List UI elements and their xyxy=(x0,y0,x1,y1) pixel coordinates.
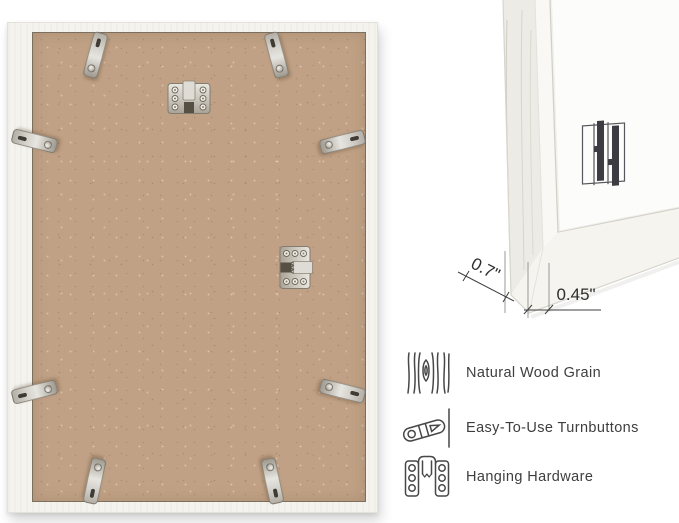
feature-item-turnbuttons: Easy-To-Use Turnbuttons xyxy=(400,406,639,450)
wood-grain-icon xyxy=(400,350,454,396)
feature-label: Natural Wood Grain xyxy=(466,365,601,381)
frame-mat xyxy=(550,0,679,232)
dimension-label-face-width: 0.45" xyxy=(556,285,595,304)
frame-corner-photo: 0.7" 0.45" xyxy=(440,0,679,335)
hanging-hardware-icon xyxy=(400,454,454,500)
sawtooth-hanger-top xyxy=(167,80,211,121)
feature-label: Easy-To-Use Turnbuttons xyxy=(466,420,639,436)
feature-item-hanging-hardware: Hanging Hardware xyxy=(400,454,593,500)
feature-label: Hanging Hardware xyxy=(466,469,593,485)
sawtooth-hanger-side xyxy=(273,246,314,290)
turnbutton-icon xyxy=(400,406,454,450)
frame-back-photo xyxy=(7,22,378,513)
feature-item-wood-grain: Natural Wood Grain xyxy=(400,350,601,396)
product-spec-image: 0.7" 0.45" xyxy=(0,0,679,523)
